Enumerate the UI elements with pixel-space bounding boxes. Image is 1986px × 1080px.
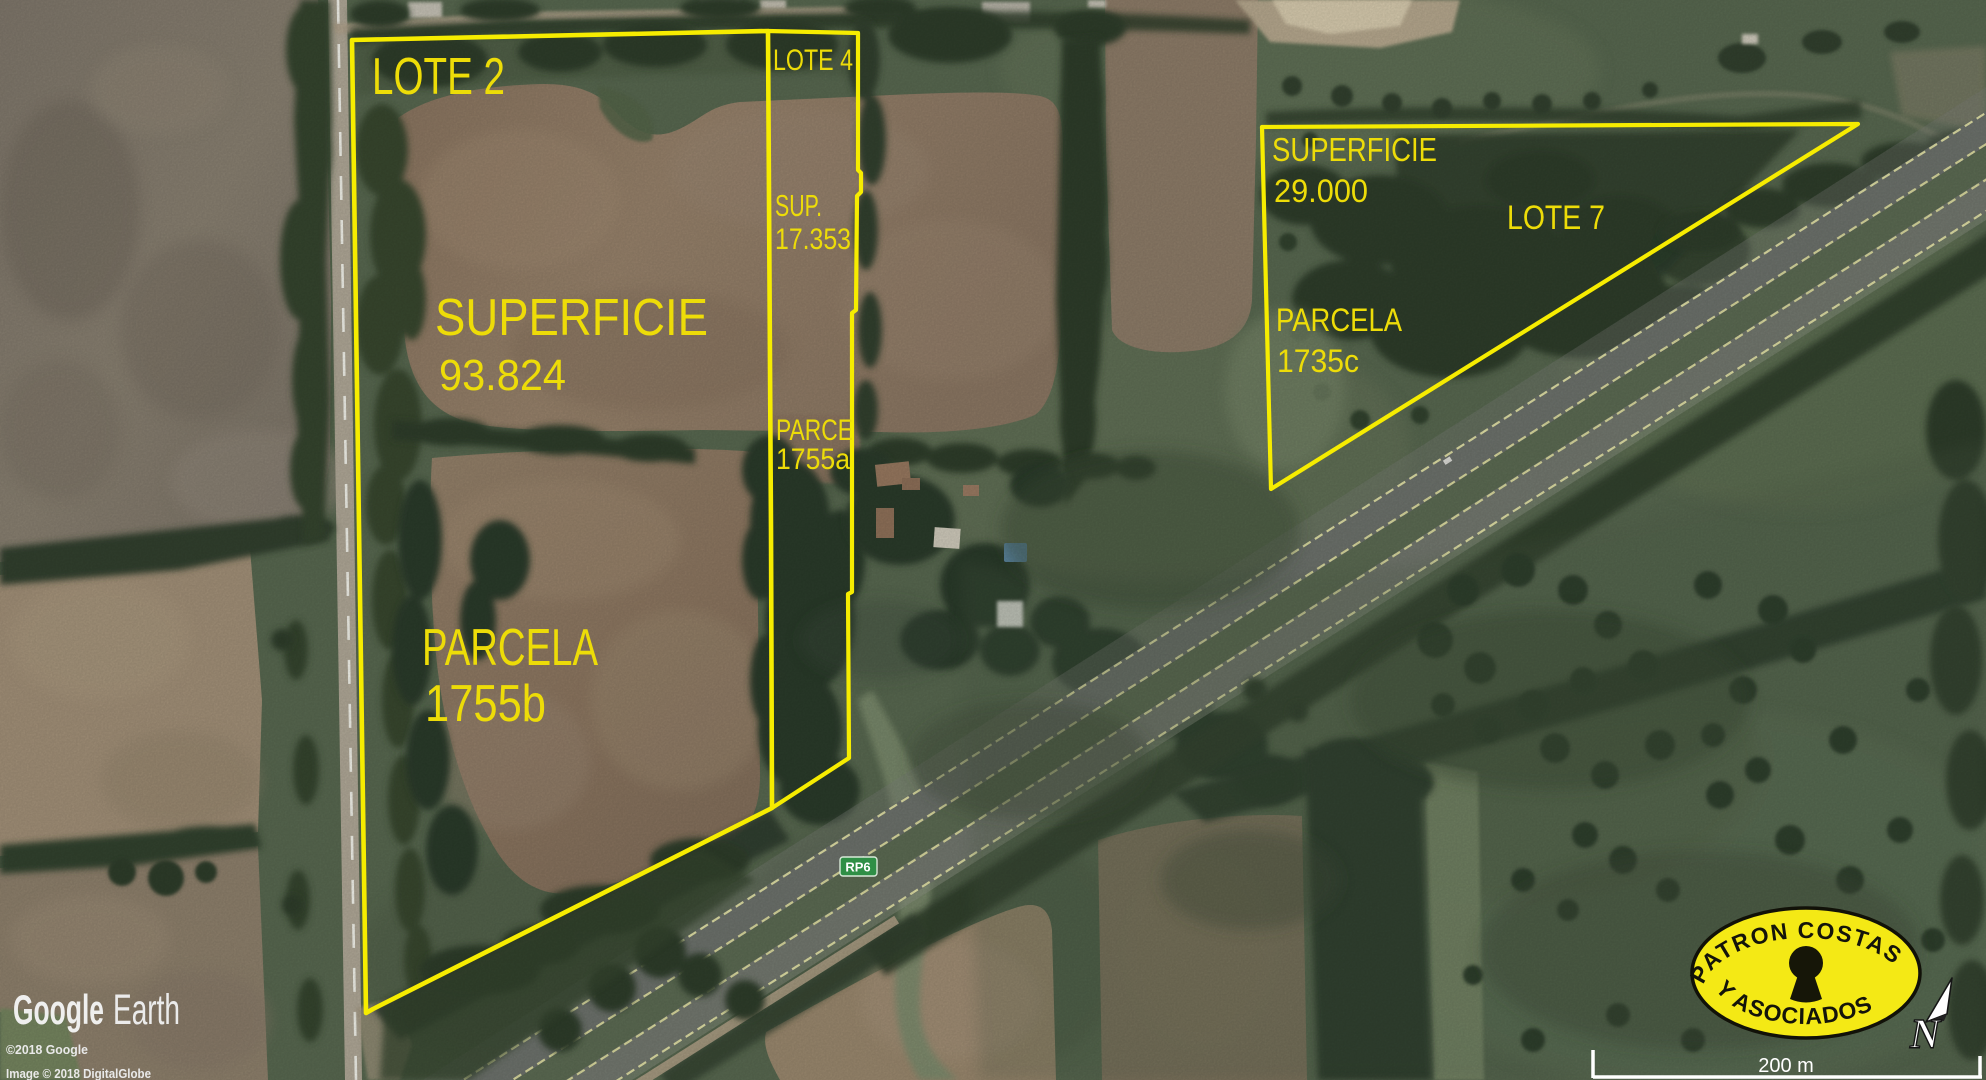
svg-text:PARCELA: PARCELA [422, 619, 598, 677]
svg-text:Earth: Earth [113, 986, 180, 1034]
svg-text:SUPERFICIE: SUPERFICIE [435, 289, 708, 347]
svg-text:LOTE 2: LOTE 2 [372, 48, 505, 106]
svg-text:RP6: RP6 [845, 860, 870, 875]
svg-text:©2018 Google: ©2018 Google [6, 1042, 88, 1057]
svg-text:1755b: 1755b [425, 675, 546, 733]
svg-text:17.353: 17.353 [775, 223, 851, 256]
svg-text:Image © 2018 DigitalGlobe: Image © 2018 DigitalGlobe [6, 1066, 151, 1080]
svg-text:Google: Google [13, 986, 104, 1033]
svg-text:93.824: 93.824 [439, 351, 566, 400]
svg-text:1735c: 1735c [1277, 343, 1359, 379]
svg-text:SUP.: SUP. [775, 188, 822, 223]
svg-text:200 m: 200 m [1758, 1055, 1814, 1077]
svg-text:N: N [1909, 1012, 1942, 1058]
svg-text:SUPERFICIE: SUPERFICIE [1272, 131, 1437, 168]
svg-text:LOTE 4: LOTE 4 [773, 44, 853, 77]
svg-text:PARCELA: PARCELA [1276, 302, 1403, 338]
svg-text:29.000: 29.000 [1274, 173, 1368, 209]
svg-text:1755a: 1755a [776, 443, 850, 476]
svg-text:LOTE 7: LOTE 7 [1507, 199, 1605, 237]
